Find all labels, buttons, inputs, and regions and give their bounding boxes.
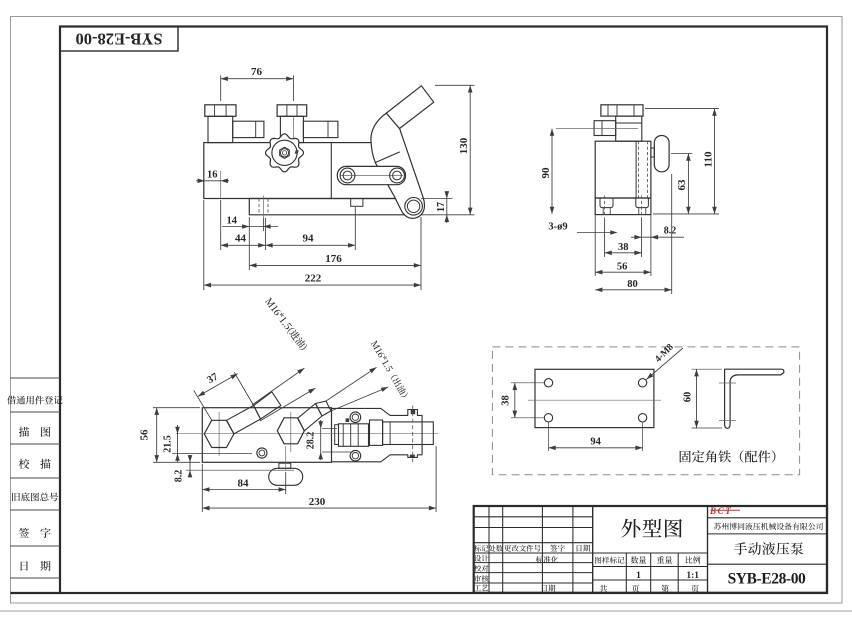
svg-text:38: 38	[501, 395, 512, 406]
svg-text:SYB-E28-00: SYB-E28-00	[728, 571, 806, 588]
svg-text:56: 56	[138, 429, 150, 441]
svg-text:16: 16	[207, 170, 218, 181]
svg-text:3-ø9: 3-ø9	[548, 222, 567, 233]
svg-text:84: 84	[238, 477, 250, 489]
svg-text:17: 17	[436, 202, 447, 212]
svg-text:230: 230	[309, 496, 326, 508]
svg-text:56: 56	[617, 261, 628, 272]
svg-text:90: 90	[540, 167, 552, 179]
svg-text:176: 176	[325, 253, 342, 265]
svg-text:14: 14	[226, 216, 237, 227]
svg-text:60: 60	[682, 392, 693, 403]
svg-text:76: 76	[251, 66, 263, 78]
svg-text:28.2: 28.2	[306, 432, 317, 450]
svg-text:44: 44	[235, 232, 247, 244]
svg-text:110: 110	[702, 151, 714, 167]
svg-text:SYB-E28-00: SYB-E28-00	[75, 29, 162, 48]
svg-text:1: 1	[636, 571, 641, 581]
svg-text:94: 94	[590, 437, 601, 448]
svg-text:38: 38	[618, 242, 629, 253]
svg-text:130: 130	[458, 137, 470, 154]
svg-text:222: 222	[305, 272, 322, 284]
svg-text:1:1: 1:1	[686, 571, 699, 581]
svg-text:8.2: 8.2	[174, 470, 185, 483]
svg-text:80: 80	[627, 279, 638, 290]
svg-text:94: 94	[303, 233, 315, 245]
svg-text:63: 63	[676, 179, 688, 191]
svg-text:8.2: 8.2	[664, 226, 677, 237]
svg-text:21.5: 21.5	[162, 435, 173, 453]
